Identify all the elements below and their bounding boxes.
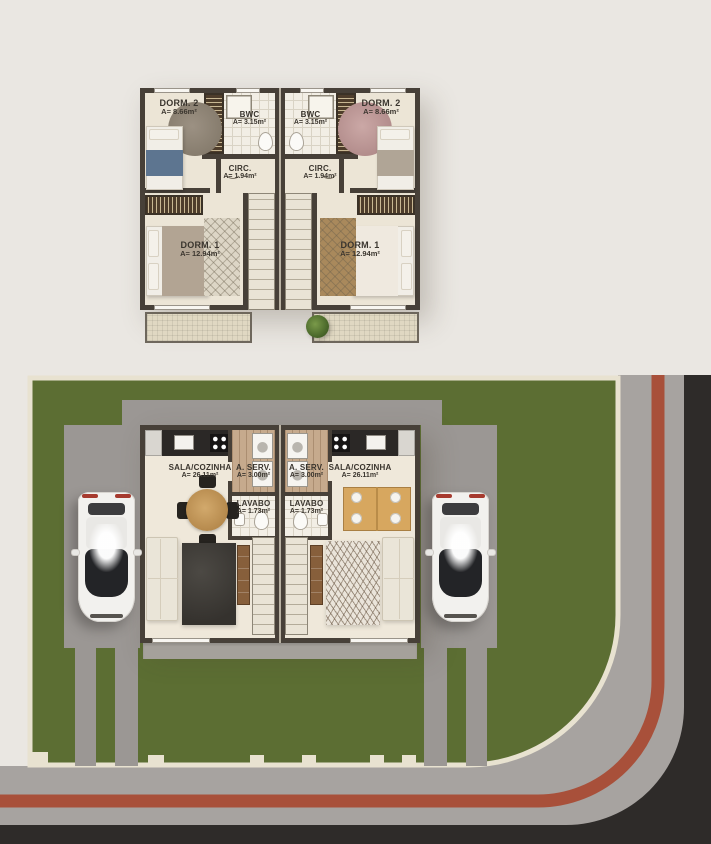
dining-table-round-left xyxy=(186,489,228,531)
party-wall-upper xyxy=(275,88,285,310)
party-wall-ground xyxy=(275,425,285,643)
door-arc-circ-right xyxy=(320,161,338,179)
tail-light xyxy=(436,494,452,498)
ground-floor-plan: SALA/COZINHA A= 26.11m² SALA/COZINHA A= … xyxy=(140,425,420,661)
car-right xyxy=(432,492,489,622)
toilet-right xyxy=(289,132,304,151)
balcony-left xyxy=(145,312,252,343)
window xyxy=(370,88,406,93)
staircase-ground-left xyxy=(252,537,275,635)
shower-left xyxy=(226,95,252,119)
bed-dorm2-left xyxy=(146,126,183,190)
car-glare xyxy=(89,524,124,572)
car-mirror xyxy=(488,550,495,555)
tail-light xyxy=(115,494,131,498)
walkway-left-a xyxy=(75,648,96,766)
car-rear-window xyxy=(88,503,125,515)
wall xyxy=(328,430,332,462)
window xyxy=(154,88,190,93)
stove-left xyxy=(210,434,229,452)
bed-dorm2-right xyxy=(377,126,414,190)
plate xyxy=(390,513,401,524)
shower-right xyxy=(308,95,334,119)
washer-right-2 xyxy=(287,461,308,487)
staircase-upper-right xyxy=(285,193,312,310)
wall xyxy=(312,193,317,310)
wall xyxy=(216,154,221,193)
rug-dorm1-left xyxy=(204,218,240,296)
wardrobe-dorm1-left xyxy=(145,195,203,215)
washer-right-1 xyxy=(287,433,308,459)
rug-living-right xyxy=(326,541,380,625)
upper-plan-walls: DORM. 2 A= 8.66m² DORM. 2 A= 8.66m² BWC … xyxy=(140,88,420,310)
door-arc-circ-left xyxy=(224,161,242,179)
window xyxy=(350,305,406,310)
stove-right xyxy=(331,434,350,452)
window xyxy=(300,88,324,93)
wall xyxy=(228,430,232,462)
rug-living-left xyxy=(182,543,236,625)
sofa-left xyxy=(146,537,178,621)
walkway-right-b xyxy=(466,648,487,766)
car-grille xyxy=(444,614,477,618)
wall xyxy=(202,154,277,159)
tail-light xyxy=(469,494,485,498)
fridge-right xyxy=(398,430,415,456)
kitchen-sink-right xyxy=(366,435,386,450)
dining-chair xyxy=(199,475,216,488)
walkway-right-a xyxy=(424,648,447,766)
back-patio xyxy=(122,400,442,425)
rug-dorm1-right xyxy=(320,218,356,296)
bed-dorm1-right xyxy=(352,226,414,296)
toilet-lavabo-left xyxy=(254,511,269,530)
wardrobe-dorm1-right xyxy=(357,195,415,215)
car-rear-window xyxy=(442,503,479,515)
toilet-lavabo-right xyxy=(293,511,308,530)
car-mirror xyxy=(134,550,141,555)
plate xyxy=(351,492,362,503)
car-left xyxy=(78,492,135,622)
floor-plan-render: DORM. 2 A= 8.66m² DORM. 2 A= 8.66m² BWC … xyxy=(0,0,711,844)
potted-plant xyxy=(306,315,329,338)
ground-plan-walls: SALA/COZINHA A= 26.11m² SALA/COZINHA A= … xyxy=(140,425,420,643)
bed-dorm1-left xyxy=(146,226,208,296)
washer-left-2 xyxy=(252,461,273,487)
sink-lavabo-right xyxy=(317,513,328,526)
car-mirror xyxy=(426,550,433,555)
toilet-left xyxy=(258,132,273,151)
window xyxy=(236,88,260,93)
wall xyxy=(328,481,332,540)
window xyxy=(154,305,210,310)
tv-stand-right xyxy=(310,545,323,605)
plate xyxy=(351,513,362,524)
staircase-ground-right xyxy=(285,537,308,635)
upper-floor-plan: DORM. 2 A= 8.66m² DORM. 2 A= 8.66m² BWC … xyxy=(140,88,420,343)
walkway-left-b xyxy=(115,648,138,766)
tail-light xyxy=(82,494,98,498)
car-mirror xyxy=(72,550,79,555)
front-terrace xyxy=(143,643,417,659)
car-grille xyxy=(90,614,123,618)
wall xyxy=(283,154,358,159)
plate xyxy=(390,492,401,503)
car-glare xyxy=(443,524,478,572)
fridge-left xyxy=(145,430,162,456)
tv-stand-left xyxy=(237,545,250,605)
sofa-right xyxy=(382,537,414,621)
staircase-upper-left xyxy=(248,193,275,310)
washer-left-1 xyxy=(252,433,273,459)
kitchen-sink-left xyxy=(174,435,194,450)
wall xyxy=(339,154,344,193)
